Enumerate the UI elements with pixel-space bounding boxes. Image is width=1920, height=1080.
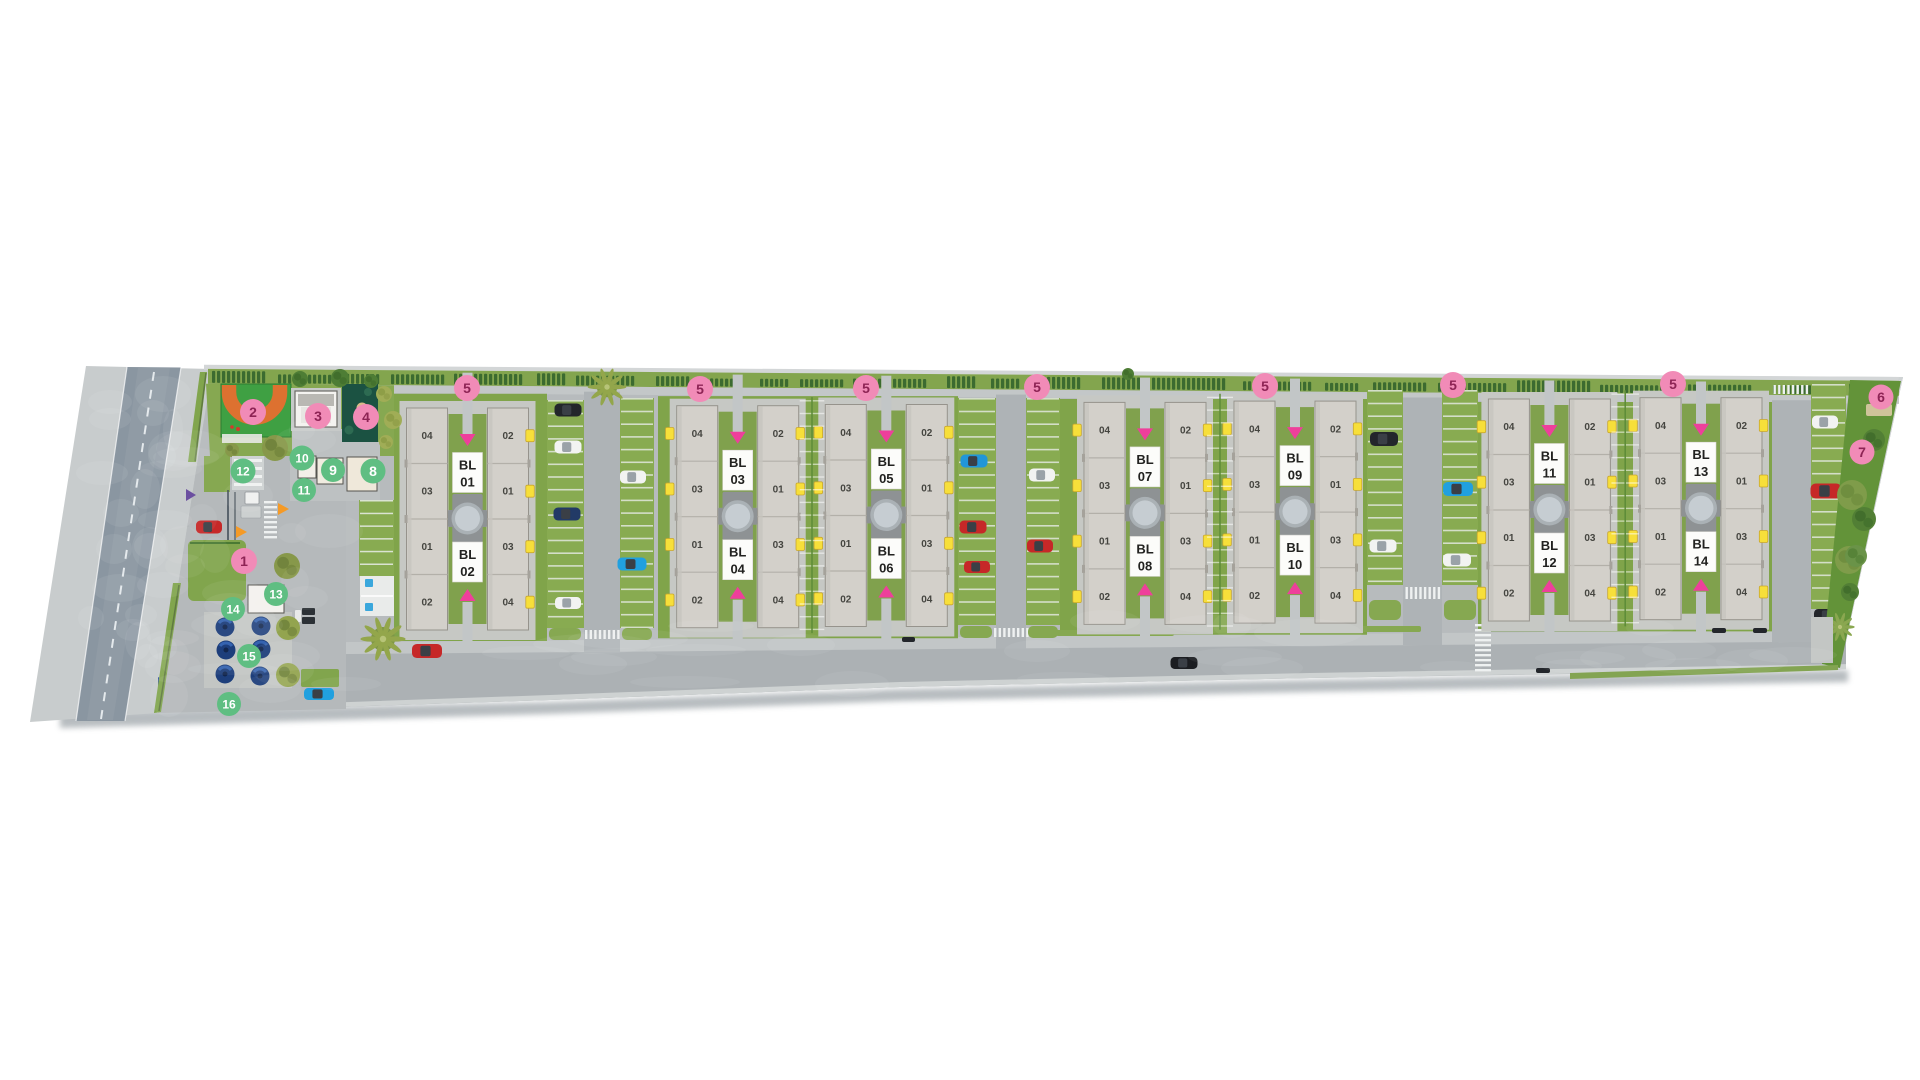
svg-text:09: 09 (1288, 468, 1302, 483)
svg-text:5: 5 (463, 380, 471, 396)
svg-text:8: 8 (369, 463, 377, 479)
svg-text:02: 02 (692, 596, 704, 607)
svg-text:04: 04 (730, 562, 745, 577)
svg-text:11: 11 (298, 483, 311, 497)
svg-text:01: 01 (840, 539, 852, 550)
svg-text:03: 03 (921, 539, 933, 550)
svg-text:BL: BL (878, 544, 895, 559)
svg-text:01: 01 (692, 540, 704, 551)
svg-text:BL: BL (729, 545, 746, 560)
svg-text:02: 02 (840, 594, 852, 605)
svg-text:03: 03 (1180, 537, 1192, 548)
svg-text:02: 02 (502, 431, 514, 442)
svg-text:BL: BL (729, 455, 746, 470)
svg-text:03: 03 (773, 540, 785, 551)
svg-text:02: 02 (1736, 421, 1748, 432)
svg-text:02: 02 (1330, 424, 1342, 435)
svg-text:5: 5 (1033, 379, 1041, 395)
svg-text:03: 03 (692, 485, 704, 496)
svg-text:03: 03 (1736, 532, 1748, 543)
svg-text:BL: BL (1136, 452, 1153, 467)
svg-text:5: 5 (862, 380, 870, 396)
svg-text:5: 5 (1261, 378, 1269, 394)
svg-text:4: 4 (362, 409, 370, 425)
svg-text:01: 01 (460, 475, 474, 490)
svg-text:01: 01 (502, 487, 514, 498)
svg-text:02: 02 (1655, 588, 1667, 599)
svg-text:16: 16 (222, 697, 236, 711)
svg-text:02: 02 (773, 429, 785, 440)
svg-text:BL: BL (1541, 449, 1558, 464)
svg-text:04: 04 (840, 428, 852, 439)
svg-text:12: 12 (236, 464, 250, 478)
svg-text:13: 13 (269, 587, 283, 601)
svg-text:BL: BL (878, 454, 895, 469)
svg-text:13: 13 (1694, 464, 1708, 479)
svg-text:BL: BL (1286, 540, 1303, 555)
svg-text:06: 06 (879, 561, 893, 576)
svg-text:11: 11 (1543, 466, 1557, 481)
svg-text:14: 14 (1694, 554, 1709, 569)
svg-text:04: 04 (1655, 421, 1667, 432)
svg-text:5: 5 (1449, 377, 1457, 393)
svg-text:3: 3 (314, 408, 322, 424)
svg-text:08: 08 (1138, 558, 1152, 573)
svg-text:BL: BL (1692, 537, 1709, 552)
svg-text:03: 03 (840, 483, 852, 494)
svg-text:03: 03 (1503, 478, 1515, 489)
svg-text:01: 01 (1330, 480, 1342, 491)
svg-text:6: 6 (1877, 389, 1885, 405)
svg-text:02: 02 (1584, 422, 1596, 433)
svg-text:04: 04 (773, 596, 785, 607)
svg-text:01: 01 (921, 483, 933, 494)
svg-text:BL: BL (1136, 541, 1153, 556)
svg-text:01: 01 (1655, 532, 1667, 543)
svg-text:01: 01 (1249, 535, 1261, 546)
svg-text:04: 04 (921, 594, 933, 605)
svg-text:01: 01 (421, 542, 433, 553)
svg-text:2: 2 (249, 404, 257, 420)
svg-text:04: 04 (1584, 589, 1596, 600)
svg-text:03: 03 (502, 542, 514, 553)
svg-text:02: 02 (1503, 589, 1515, 600)
svg-text:04: 04 (502, 598, 514, 609)
svg-text:01: 01 (1099, 537, 1111, 548)
svg-text:01: 01 (1180, 481, 1192, 492)
svg-text:03: 03 (1249, 480, 1261, 491)
svg-text:01: 01 (1584, 478, 1596, 489)
svg-text:02: 02 (460, 564, 474, 579)
svg-text:9: 9 (329, 462, 337, 478)
svg-text:BL: BL (459, 458, 476, 473)
svg-text:BL: BL (459, 547, 476, 562)
svg-text:5: 5 (696, 381, 704, 397)
svg-text:04: 04 (421, 431, 433, 442)
svg-text:10: 10 (295, 451, 309, 465)
svg-text:BL: BL (1286, 451, 1303, 466)
svg-text:04: 04 (1180, 592, 1192, 603)
svg-text:5: 5 (1669, 376, 1677, 392)
svg-text:BL: BL (1692, 447, 1709, 462)
svg-text:04: 04 (1249, 424, 1261, 435)
svg-text:14: 14 (226, 602, 240, 616)
svg-text:02: 02 (1180, 426, 1192, 437)
svg-text:07: 07 (1138, 469, 1152, 484)
svg-text:1: 1 (240, 553, 248, 569)
svg-text:10: 10 (1288, 557, 1302, 572)
svg-text:03: 03 (1099, 481, 1111, 492)
svg-text:15: 15 (242, 649, 256, 663)
svg-text:02: 02 (1249, 591, 1261, 602)
svg-text:BL: BL (1541, 538, 1558, 553)
svg-text:12: 12 (1542, 555, 1556, 570)
svg-text:04: 04 (1503, 422, 1515, 433)
svg-text:04: 04 (1099, 426, 1111, 437)
svg-text:03: 03 (1584, 533, 1596, 544)
svg-text:01: 01 (1503, 533, 1515, 544)
svg-text:04: 04 (1330, 591, 1342, 602)
svg-text:03: 03 (421, 487, 433, 498)
svg-text:02: 02 (1099, 592, 1111, 603)
svg-text:01: 01 (1736, 477, 1748, 488)
svg-text:7: 7 (1858, 444, 1866, 460)
svg-text:04: 04 (1736, 588, 1748, 599)
svg-text:03: 03 (730, 472, 744, 487)
svg-text:03: 03 (1655, 477, 1667, 488)
svg-text:05: 05 (879, 471, 893, 486)
svg-text:01: 01 (773, 485, 785, 496)
svg-text:02: 02 (921, 428, 933, 439)
svg-text:03: 03 (1330, 535, 1342, 546)
svg-text:02: 02 (421, 598, 433, 609)
svg-text:04: 04 (692, 429, 704, 440)
